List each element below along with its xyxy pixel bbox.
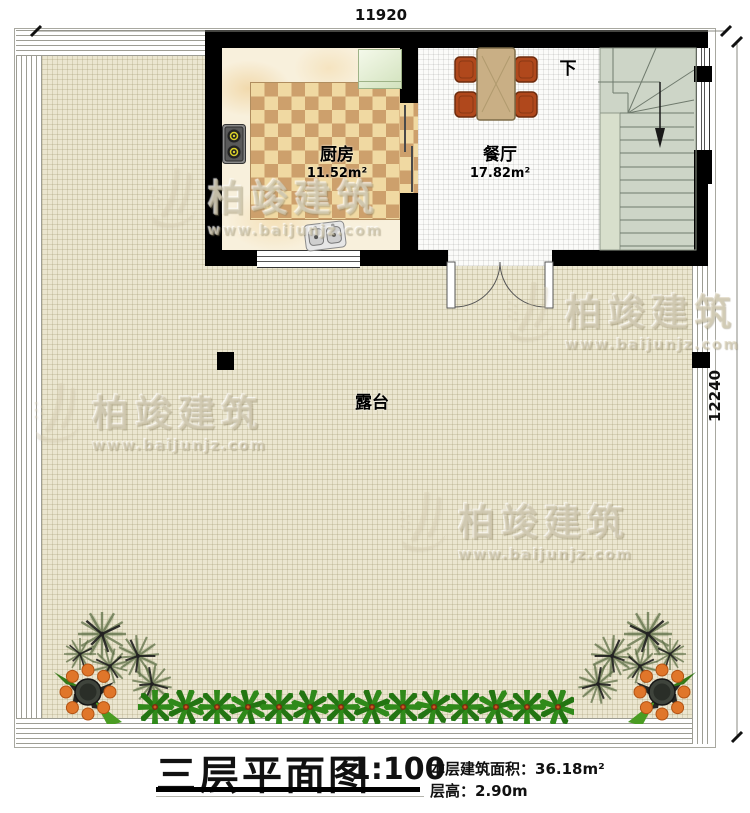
stove: [222, 124, 246, 164]
floor-area-row: 本层建筑面积：36.18m²: [430, 758, 605, 780]
terrace-railing-top: [16, 30, 206, 56]
wall-bottom-b: [360, 250, 448, 266]
title-underline-thick: [156, 787, 420, 792]
kitchen-label: 厨房: [297, 146, 377, 165]
wall-right-lower: [694, 184, 708, 250]
stair-window-small: [696, 48, 710, 66]
wall-bottom-a: [205, 250, 257, 266]
floor-area-label: 本层建筑面积：: [430, 760, 535, 778]
wall-kitchen-dining-upper: [400, 48, 418, 103]
kitchen-door-floor: [400, 103, 418, 193]
plant-row: [138, 690, 574, 724]
stair-window-large: [696, 82, 710, 150]
plan-title: 三层平面图: [156, 743, 371, 801]
plan-info: 本层建筑面积：36.18m² 层高：2.90m: [430, 758, 605, 802]
refrigerator: [358, 49, 402, 89]
sink: [303, 220, 347, 252]
kitchen-window: [257, 250, 360, 268]
floor-plan-page: 柏竣建筑 www.baijunjz.com 柏竣建筑 www.baijunjz.…: [0, 0, 750, 813]
wall-bottom-c: [552, 250, 708, 266]
title-underline-thin: [156, 796, 424, 797]
terrace-label: 露台: [330, 394, 414, 413]
wall-right-pier: [694, 66, 712, 82]
kitchen-area: 11.52m²: [297, 167, 377, 181]
stairs-down-label: 下: [556, 60, 580, 79]
floor-area-value: 36.18m²: [535, 760, 605, 778]
dining-area: 17.82m²: [460, 167, 540, 181]
terrace-column: [217, 352, 234, 370]
wall-right-upper: [694, 150, 712, 184]
dimension-right: 12240: [706, 346, 724, 446]
dining-label: 餐厅: [460, 146, 540, 165]
floor-height-label: 层高：: [430, 782, 475, 800]
dimension-top: 11920: [331, 6, 431, 24]
wall-kitchen-left: [205, 48, 222, 266]
floor-height-value: 2.90m: [475, 782, 528, 800]
terrace-railing-left: [16, 30, 42, 744]
floor-height-row: 层高：2.90m: [430, 780, 605, 802]
dining-table-set: [448, 42, 542, 126]
